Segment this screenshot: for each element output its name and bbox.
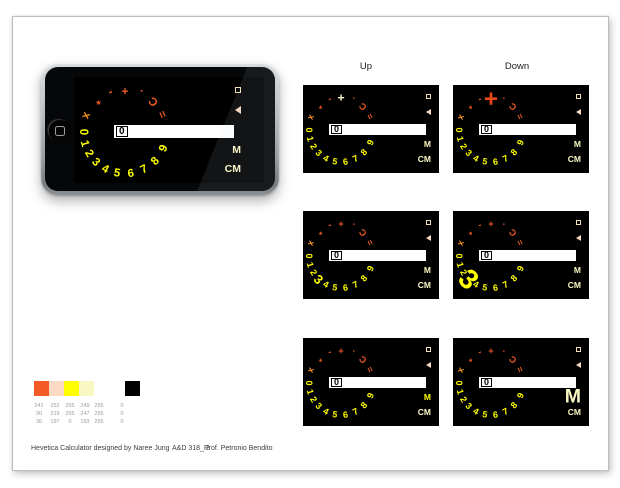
demo-screen-down-3: x*-+.C=98765432100MCM bbox=[453, 211, 589, 299]
demo-up-3-key-5: 5 bbox=[331, 283, 338, 293]
calc-key-multiply[interactable]: x bbox=[79, 110, 92, 120]
demo-up-3-display-field: 0 bbox=[329, 250, 426, 261]
calc-key-6[interactable]: 6 bbox=[127, 168, 135, 180]
demo-down-m-display-field: 0 bbox=[479, 377, 576, 388]
demo-down-plus-key-5: 5 bbox=[481, 157, 488, 167]
demo-down-plus-cm-button: CM bbox=[568, 155, 581, 164]
demo-up-3-key-asterisk: * bbox=[315, 227, 324, 236]
rgb-value: 255 bbox=[89, 403, 109, 409]
device-face: x*-+.C=98765432100MCM bbox=[45, 67, 275, 191]
demo-up-plus-key-plus: + bbox=[337, 91, 344, 103]
rgb-value: 255 bbox=[89, 411, 109, 417]
calc-display-field[interactable]: 0 bbox=[114, 125, 234, 138]
caption-title: Hevetica Calculator designed by Naree Ju… bbox=[31, 445, 170, 452]
swatch-orange bbox=[34, 381, 49, 396]
demo-down-plus-display-field: 0 bbox=[479, 124, 576, 135]
calc-key-minus[interactable]: - bbox=[107, 86, 115, 98]
demo-up-3-key-equals: = bbox=[365, 238, 375, 247]
rgb-value: 0 bbox=[112, 403, 132, 409]
rgb-value: 0 bbox=[112, 419, 132, 425]
demo-up-m-m-button: M bbox=[424, 393, 431, 402]
demo-up-3-cm-button: CM bbox=[418, 281, 431, 290]
calc-key-asterisk[interactable]: * bbox=[91, 94, 102, 106]
demo-down-m-square-icon bbox=[576, 347, 581, 352]
swatch-peach bbox=[49, 381, 64, 396]
calc-m-button[interactable]: M bbox=[232, 145, 241, 156]
calc-key-decimal[interactable]: . bbox=[137, 86, 144, 98]
demo-up-3-key-1: 1 bbox=[305, 261, 315, 268]
demo-up-m-key-asterisk: * bbox=[315, 354, 324, 363]
column-label-up: Up bbox=[326, 61, 406, 72]
demo-down-plus-key-multiply: x bbox=[456, 113, 466, 121]
demo-down-plus-key-8: 8 bbox=[509, 148, 519, 158]
demo-up-m-key-9: 9 bbox=[366, 392, 376, 400]
demo-down-plus-square-icon bbox=[576, 94, 581, 99]
demo-up-3-key-plus: + bbox=[338, 219, 343, 228]
demo-up-plus-square-icon bbox=[426, 94, 431, 99]
demo-down-m-key-8: 8 bbox=[509, 401, 519, 411]
demo-screen-up-3: x*-+.C=98765432100MCM bbox=[303, 211, 439, 299]
calc-key-2[interactable]: 2 bbox=[82, 148, 95, 159]
demo-down-m-key-1: 1 bbox=[455, 388, 465, 395]
demo-up-m-key-multiply: x bbox=[306, 366, 316, 374]
demo-down-m-m-button: M bbox=[565, 387, 581, 407]
swatch-cream bbox=[79, 381, 94, 396]
demo-down-3-key-8: 8 bbox=[509, 274, 519, 284]
demo-down-3-m-button: M bbox=[574, 266, 581, 275]
demo-down-m-key-decimal: . bbox=[500, 348, 506, 357]
demo-up-plus-key-5: 5 bbox=[331, 157, 338, 167]
demo-down-plus-key-0: 0 bbox=[454, 127, 463, 132]
demo-down-plus-m-button: M bbox=[574, 140, 581, 149]
demo-down-m-key-3: 3 bbox=[463, 401, 473, 411]
demo-down-m-key-asterisk: * bbox=[465, 354, 474, 363]
demo-up-m-key-7: 7 bbox=[351, 407, 360, 417]
demo-up-m-key-minus: - bbox=[327, 348, 333, 357]
demo-up-m-display-value: 0 bbox=[331, 378, 342, 387]
calc-key-7[interactable]: 7 bbox=[139, 164, 150, 177]
demo-up-plus-key-9: 9 bbox=[366, 139, 376, 147]
demo-down-plus-key-6: 6 bbox=[492, 157, 498, 167]
demo-screen-down-m: x*-+.C=98765432100MCM bbox=[453, 338, 589, 426]
demo-up-plus-key-decimal: . bbox=[350, 95, 356, 104]
demo-down-m-key-0: 0 bbox=[454, 380, 463, 385]
demo-up-plus-m-button: M bbox=[424, 140, 431, 149]
demo-down-plus-key-clear: C bbox=[508, 101, 519, 112]
demo-up-m-key-decimal: . bbox=[350, 348, 356, 357]
calc-triangle-left-icon[interactable] bbox=[235, 106, 241, 114]
demo-down-3-key-equals: = bbox=[515, 238, 525, 247]
demo-up-3-key-9: 9 bbox=[366, 265, 376, 273]
demo-up-m-key-6: 6 bbox=[342, 410, 348, 420]
demo-up-m-key-3: 3 bbox=[313, 401, 323, 411]
demo-down-m-key-9: 9 bbox=[516, 392, 526, 400]
demo-up-m-triangle-left-icon bbox=[426, 362, 431, 368]
demo-up-m-key-8: 8 bbox=[359, 401, 369, 411]
calc-display-value: 0 bbox=[116, 126, 128, 137]
demo-down-3-display-field: 0 bbox=[479, 250, 576, 261]
demo-down-m-triangle-left-icon bbox=[576, 362, 581, 368]
demo-down-3-key-3: 3 bbox=[453, 264, 484, 295]
demo-down-3-key-7: 7 bbox=[501, 280, 510, 290]
calc-square-icon[interactable] bbox=[235, 87, 241, 93]
demo-up-plus-key-0: 0 bbox=[304, 127, 313, 132]
home-button[interactable] bbox=[49, 120, 71, 142]
demo-down-3-key-0: 0 bbox=[454, 253, 463, 258]
home-button-square-icon bbox=[55, 126, 65, 136]
demo-down-3-key-clear: C bbox=[508, 227, 519, 238]
demo-down-plus-key-3: 3 bbox=[463, 148, 473, 158]
demo-up-3-key-4: 4 bbox=[321, 280, 330, 290]
demo-down-3-triangle-left-icon bbox=[576, 235, 581, 241]
demo-up-plus-key-3: 3 bbox=[313, 148, 323, 158]
demo-down-m-key-6: 6 bbox=[492, 410, 498, 420]
demo-up-m-key-5: 5 bbox=[331, 410, 338, 420]
demo-down-3-key-5: 5 bbox=[481, 283, 488, 293]
demo-up-plus-key-clear: C bbox=[358, 101, 369, 112]
demo-up-plus-key-1: 1 bbox=[305, 135, 315, 142]
demo-up-plus-key-equals: = bbox=[365, 112, 375, 121]
demo-up-m-key-1: 1 bbox=[305, 388, 315, 395]
demo-up-3-key-decimal: . bbox=[350, 221, 356, 230]
demo-down-plus-key-plus: + bbox=[484, 85, 498, 109]
demo-down-m-key-4: 4 bbox=[471, 407, 480, 417]
demo-down-3-key-plus: + bbox=[488, 219, 493, 228]
demo-up-plus-key-minus: - bbox=[327, 95, 333, 104]
demo-up-3-key-7: 7 bbox=[351, 280, 360, 290]
demo-down-m-key-clear: C bbox=[508, 354, 519, 365]
calc-key-1[interactable]: 1 bbox=[77, 139, 90, 148]
demo-up-plus-display-field: 0 bbox=[329, 124, 426, 135]
calc-key-5[interactable]: 5 bbox=[113, 168, 121, 181]
demo-down-plus-triangle-left-icon bbox=[576, 109, 581, 115]
demo-down-3-key-9: 9 bbox=[516, 265, 526, 273]
calc-key-3[interactable]: 3 bbox=[89, 157, 102, 170]
demo-down-m-display-value: 0 bbox=[481, 378, 492, 387]
demo-up-m-cm-button: CM bbox=[418, 408, 431, 417]
demo-down-3-key-6: 6 bbox=[492, 283, 498, 293]
demo-down-m-key-5: 5 bbox=[481, 410, 488, 420]
calculator-main-screen: x*-+.C=98765432100MCM bbox=[74, 77, 264, 183]
demo-up-plus-key-asterisk: * bbox=[315, 101, 324, 110]
demo-up-m-key-0: 0 bbox=[304, 380, 313, 385]
demo-down-m-key-7: 7 bbox=[501, 407, 510, 417]
demo-screen-up-plus: x*-+.C=98765432100MCM bbox=[303, 85, 439, 173]
demo-down-m-key-plus: + bbox=[488, 346, 493, 355]
demo-up-m-key-equals: = bbox=[365, 365, 375, 374]
demo-down-plus-key-4: 4 bbox=[471, 154, 480, 164]
demo-down-m-key-multiply: x bbox=[456, 366, 466, 374]
demo-up-plus-cm-button: CM bbox=[418, 155, 431, 164]
demo-down-m-key-equals: = bbox=[515, 365, 525, 374]
demo-down-3-cm-button: CM bbox=[568, 281, 581, 290]
demo-up-3-m-button: M bbox=[424, 266, 431, 275]
demo-down-3-key-multiply: x bbox=[456, 239, 466, 247]
demo-up-3-key-clear: C bbox=[358, 227, 369, 238]
calc-key-8[interactable]: 8 bbox=[150, 156, 163, 169]
column-label-down: Down bbox=[477, 61, 557, 72]
calc-key-plus[interactable]: + bbox=[122, 83, 129, 95]
calc-key-9[interactable]: 9 bbox=[158, 144, 171, 154]
demo-up-plus-triangle-left-icon bbox=[426, 109, 431, 115]
swatch-yellow bbox=[64, 381, 79, 396]
rgb-value: 255 bbox=[89, 419, 109, 425]
demo-up-m-square-icon bbox=[426, 347, 431, 352]
demo-up-plus-key-6: 6 bbox=[342, 157, 348, 167]
ipod-touch-device: x*-+.C=98765432100MCM bbox=[41, 63, 279, 195]
demo-up-3-display-value: 0 bbox=[331, 251, 342, 260]
demo-up-3-key-multiply: x bbox=[306, 239, 316, 247]
demo-up-plus-key-4: 4 bbox=[321, 154, 330, 164]
demo-up-3-key-minus: - bbox=[327, 221, 333, 230]
demo-down-3-key-decimal: . bbox=[500, 221, 506, 230]
demo-up-m-key-plus: + bbox=[338, 346, 343, 355]
demo-down-3-key-asterisk: * bbox=[465, 227, 474, 236]
calc-cm-button[interactable]: CM bbox=[225, 164, 241, 175]
demo-up-3-square-icon bbox=[426, 220, 431, 225]
calc-key-0[interactable]: 0 bbox=[76, 129, 88, 135]
demo-down-3-key-1: 1 bbox=[455, 261, 465, 268]
demo-up-plus-key-7: 7 bbox=[351, 154, 360, 164]
demo-down-m-key-minus: - bbox=[477, 348, 483, 357]
demo-up-plus-key-8: 8 bbox=[359, 148, 369, 158]
demo-down-plus-key-decimal: . bbox=[500, 95, 506, 104]
demo-down-3-display-value: 0 bbox=[481, 251, 492, 260]
design-sheet: x*-+.C=98765432100MCM Up Down x*-+.C=987… bbox=[12, 16, 609, 471]
demo-up-plus-display-value: 0 bbox=[331, 125, 342, 134]
demo-up-m-key-4: 4 bbox=[321, 407, 330, 417]
swatch-white bbox=[94, 381, 109, 396]
rgb-value: 0 bbox=[112, 411, 132, 417]
demo-screen-up-m: x*-+.C=98765432100MCM bbox=[303, 338, 439, 426]
demo-up-m-key-clear: C bbox=[358, 354, 369, 365]
demo-down-plus-key-7: 7 bbox=[501, 154, 510, 164]
demo-down-plus-key-1: 1 bbox=[455, 135, 465, 142]
caption-professor: Prof. Petronio Bendito bbox=[204, 445, 273, 452]
demo-up-plus-key-multiply: x bbox=[306, 113, 316, 121]
demo-down-3-key-minus: - bbox=[477, 221, 483, 230]
demo-up-3-key-6: 6 bbox=[342, 283, 348, 293]
demo-up-3-triangle-left-icon bbox=[426, 235, 431, 241]
demo-up-3-key-8: 8 bbox=[359, 274, 369, 284]
demo-up-m-display-field: 0 bbox=[329, 377, 426, 388]
demo-down-plus-key-9: 9 bbox=[516, 139, 526, 147]
demo-up-3-key-0: 0 bbox=[304, 253, 313, 258]
demo-down-plus-key-asterisk: * bbox=[465, 101, 474, 110]
calc-key-clear[interactable]: C bbox=[147, 94, 161, 108]
demo-down-plus-key-equals: = bbox=[515, 112, 525, 121]
calc-key-equals[interactable]: = bbox=[157, 108, 170, 119]
demo-screen-down-plus: x*-+.C=98765432100MCM bbox=[453, 85, 589, 173]
swatch-black bbox=[125, 381, 140, 396]
demo-down-plus-display-value: 0 bbox=[481, 125, 492, 134]
demo-down-3-square-icon bbox=[576, 220, 581, 225]
demo-down-plus-key-minus: - bbox=[477, 95, 483, 104]
demo-down-m-cm-button: CM bbox=[568, 408, 581, 417]
calc-key-4[interactable]: 4 bbox=[99, 163, 110, 176]
